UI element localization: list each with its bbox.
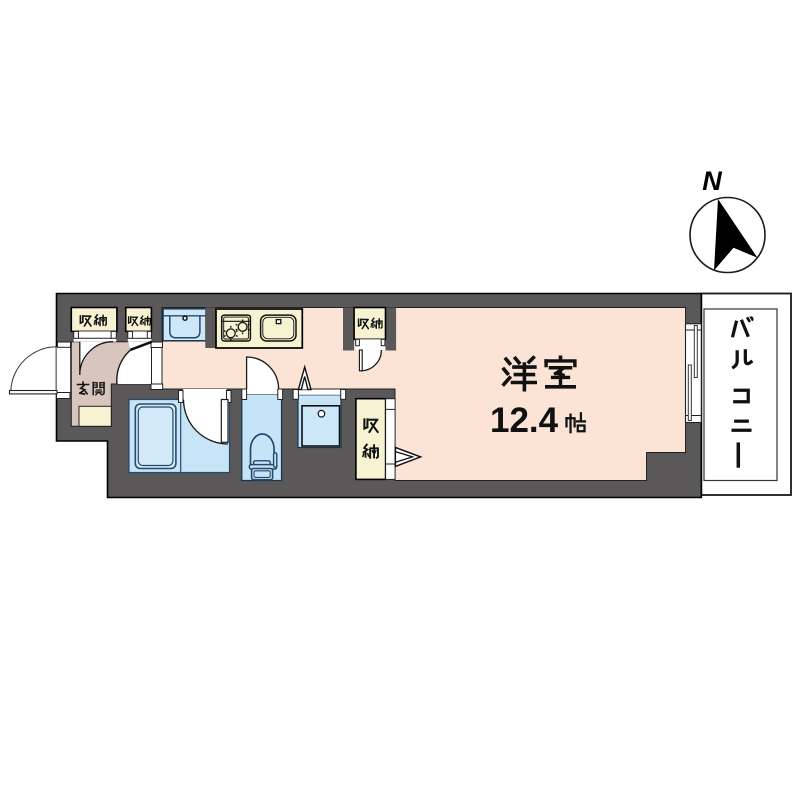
- svg-text:12.4: 12.4: [490, 401, 559, 440]
- svg-text:N: N: [702, 166, 722, 196]
